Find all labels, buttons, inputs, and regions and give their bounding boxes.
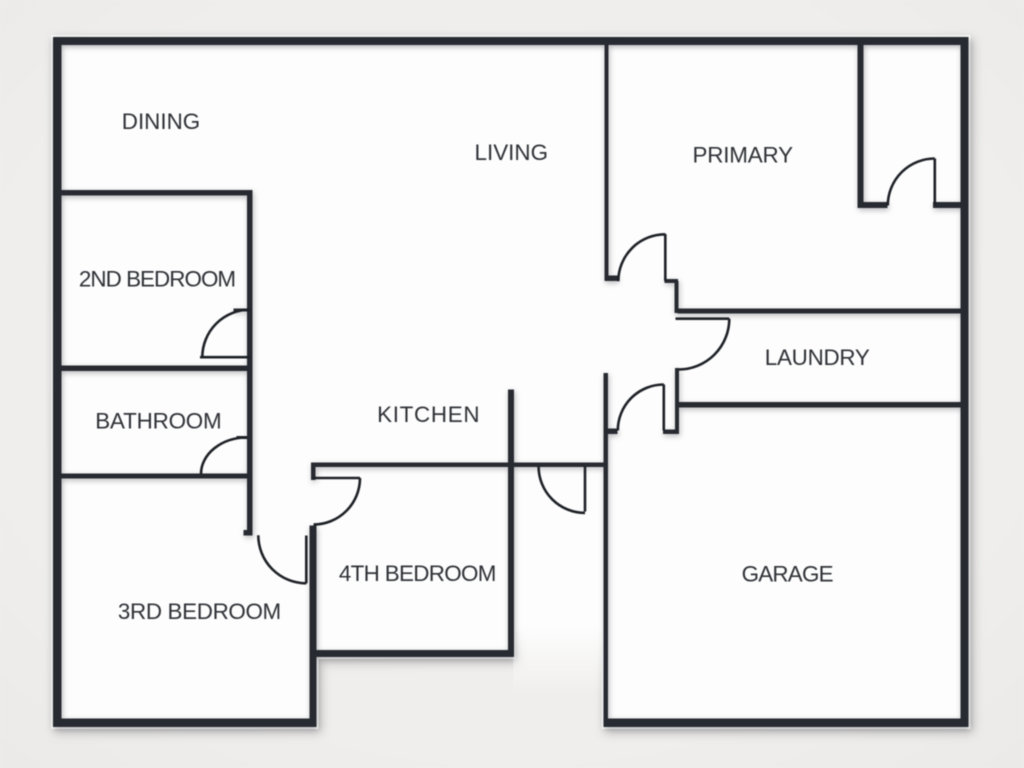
svg-text:BATHROOM: BATHROOM — [95, 408, 221, 433]
svg-text:KITCHEN: KITCHEN — [377, 402, 480, 427]
svg-text:LIVING: LIVING — [475, 140, 549, 165]
svg-text:LAUNDRY: LAUNDRY — [765, 345, 870, 370]
svg-text:3RD BEDROOM: 3RD BEDROOM — [118, 599, 281, 624]
svg-text:2ND BEDROOM: 2ND BEDROOM — [79, 267, 235, 292]
svg-text:GARAGE: GARAGE — [742, 562, 833, 587]
svg-text:PRIMARY: PRIMARY — [692, 142, 793, 167]
svg-text:4TH BEDROOM: 4TH BEDROOM — [339, 561, 496, 586]
svg-text:DINING: DINING — [122, 109, 201, 134]
